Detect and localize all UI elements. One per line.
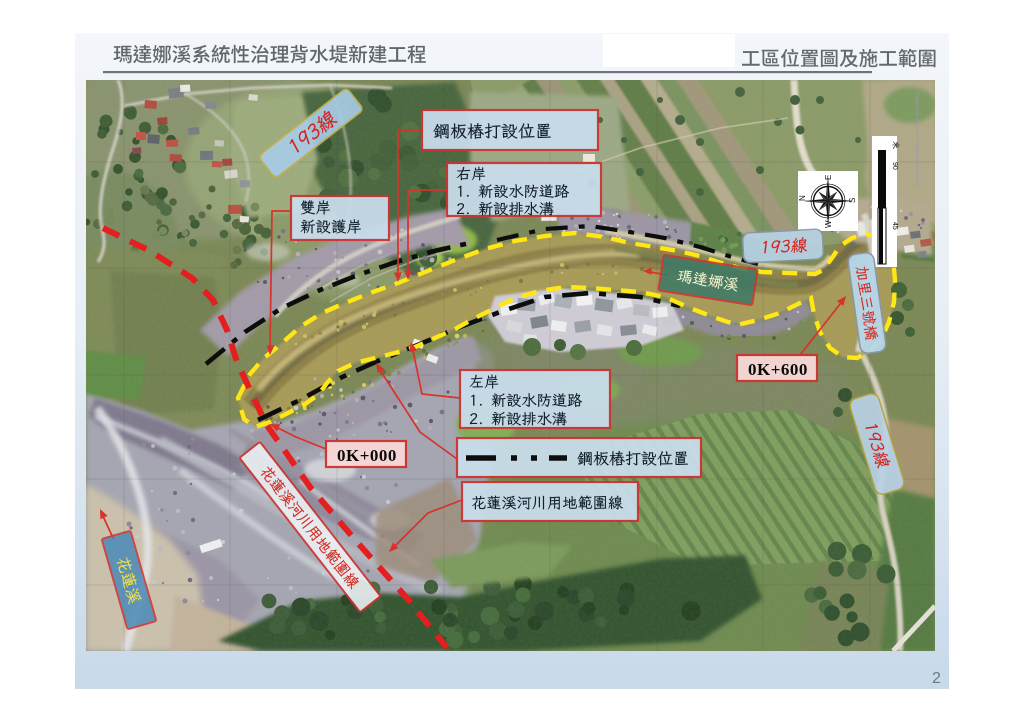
svg-text:2: 2: [932, 670, 941, 687]
svg-text:0K+000: 0K+000: [337, 446, 397, 465]
svg-text:45: 45: [891, 222, 898, 230]
svg-text:N: N: [798, 195, 807, 201]
svg-text:W: W: [824, 220, 833, 228]
svg-text:Image 2023 Maxar Technologies: Image 2023 Maxar Technologies CNES Airbu…: [915, 92, 920, 187]
svg-text:90: 90: [891, 162, 898, 170]
svg-text:S: S: [848, 198, 857, 203]
svg-text:E: E: [824, 175, 833, 180]
svg-text:0K+600: 0K+600: [748, 360, 808, 379]
